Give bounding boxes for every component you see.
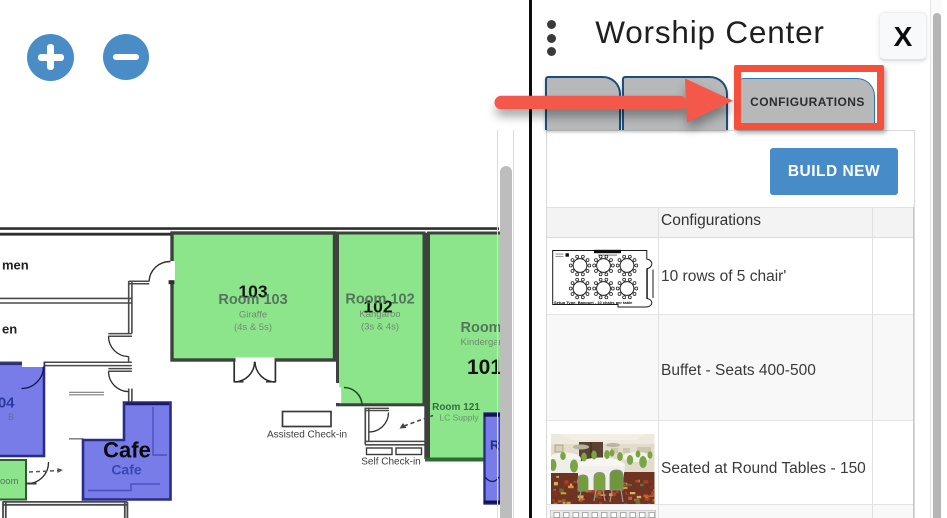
svg-text:(4s & 5s): (4s & 5s) — [234, 322, 272, 333]
svg-text:Cafe: Cafe — [103, 438, 151, 463]
svg-text:men: men — [2, 258, 29, 273]
svg-text:Cafe: Cafe — [111, 462, 142, 478]
svg-text:Assisted Check-in: Assisted Check-in — [267, 430, 347, 441]
svg-text:en: en — [2, 322, 17, 337]
svg-text:oom: oom — [0, 476, 19, 487]
svg-text:LC Supply: LC Supply — [439, 413, 479, 423]
svg-text:Giraffe: Giraffe — [239, 310, 267, 321]
svg-text:Room 102: Room 102 — [345, 292, 414, 308]
svg-text:(3s & 4s): (3s & 4s) — [361, 322, 399, 333]
svg-text:Kangaroo: Kangaroo — [359, 309, 400, 320]
svg-text:Room 121: Room 121 — [432, 402, 480, 413]
svg-text:Room 1: Room 1 — [461, 320, 501, 336]
svg-text:Setup Type: Banquet - 10 chair: Setup Type: Banquet - 10 chairs per tabl… — [554, 299, 633, 304]
svg-text:R: R — [490, 438, 500, 453]
svg-text:Kindergar: Kindergar — [461, 337, 501, 348]
svg-text:Room 103: Room 103 — [218, 292, 287, 308]
svg-text:B: B — [8, 412, 14, 422]
svg-text:Self Check-in: Self Check-in — [361, 457, 420, 468]
svg-text:101: 101 — [467, 356, 500, 379]
svg-text:04: 04 — [0, 395, 15, 412]
